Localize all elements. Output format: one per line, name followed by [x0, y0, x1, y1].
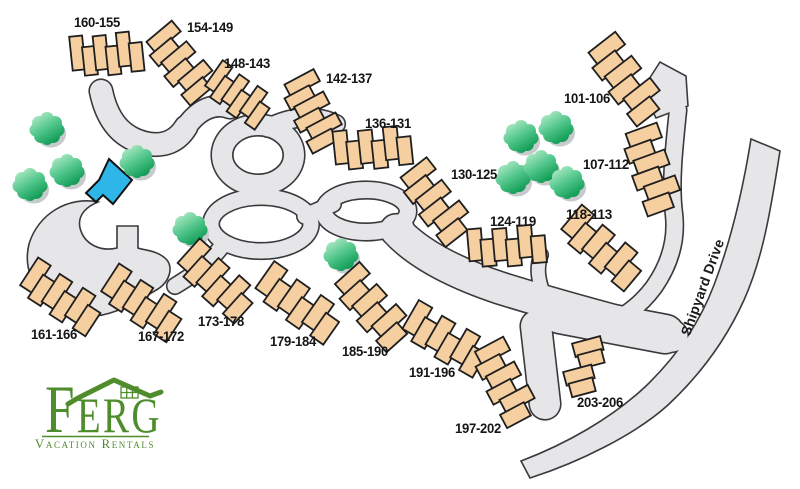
building-label-197-202: 197-202 [455, 421, 501, 436]
building-label-191-196: 191-196 [409, 365, 456, 380]
building-185-190 [329, 262, 417, 353]
logo-tagline: Vacation Rentals [35, 436, 155, 451]
road-segment [101, 91, 186, 145]
building-unit [531, 235, 547, 263]
tree-icon [13, 168, 50, 204]
resort-map: 160-155154-149148-143142-137136-131130-1… [0, 0, 800, 489]
building-label-148-143: 148-143 [224, 56, 271, 71]
building-label-154-149: 154-149 [187, 20, 233, 35]
building-label-124-119: 124-119 [490, 214, 536, 229]
building-unit [129, 42, 145, 72]
building-179-184 [251, 261, 347, 345]
building-label-107-112: 107-112 [583, 157, 629, 172]
building-unit [396, 136, 413, 165]
building-label-101-106: 101-106 [564, 91, 611, 106]
building-label-142-137: 142-137 [326, 71, 372, 86]
building-label-167-172: 167-172 [138, 329, 184, 344]
building-203-206 [557, 336, 614, 398]
road-stub [536, 326, 545, 404]
building-label-173-178: 173-178 [198, 314, 245, 329]
tree-icon [550, 166, 587, 202]
building-label-161-166: 161-166 [31, 327, 78, 342]
building-label-160-155: 160-155 [74, 15, 121, 30]
tree-icon [30, 112, 67, 148]
tree-icon [539, 111, 576, 147]
building-160-155 [69, 29, 145, 79]
tree-icon [50, 154, 87, 190]
building-label-185-190: 185-190 [342, 344, 388, 359]
building-label-130-125: 130-125 [451, 167, 498, 182]
building-label-179-184: 179-184 [270, 334, 317, 349]
building-label-118-113: 118-113 [566, 207, 613, 222]
tree-icon [504, 120, 541, 156]
building-label-203-206: 203-206 [577, 395, 624, 410]
ferg-logo: FERG Vacation Rentals [35, 373, 162, 451]
building-label-136-131: 136-131 [365, 116, 412, 131]
